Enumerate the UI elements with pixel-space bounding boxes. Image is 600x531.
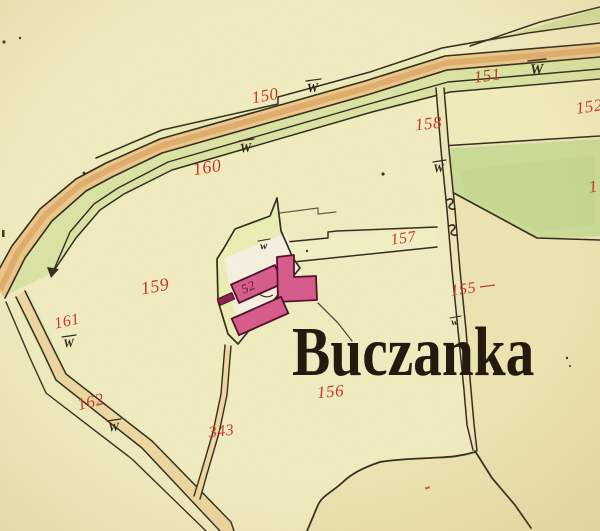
paper-vignette — [0, 0, 600, 531]
map-canvas: 52 Buczanka 150 151 152 158 155 156 157 … — [0, 0, 600, 531]
cadastral-map: 52 Buczanka 150 151 152 158 155 156 157 … — [0, 0, 600, 531]
